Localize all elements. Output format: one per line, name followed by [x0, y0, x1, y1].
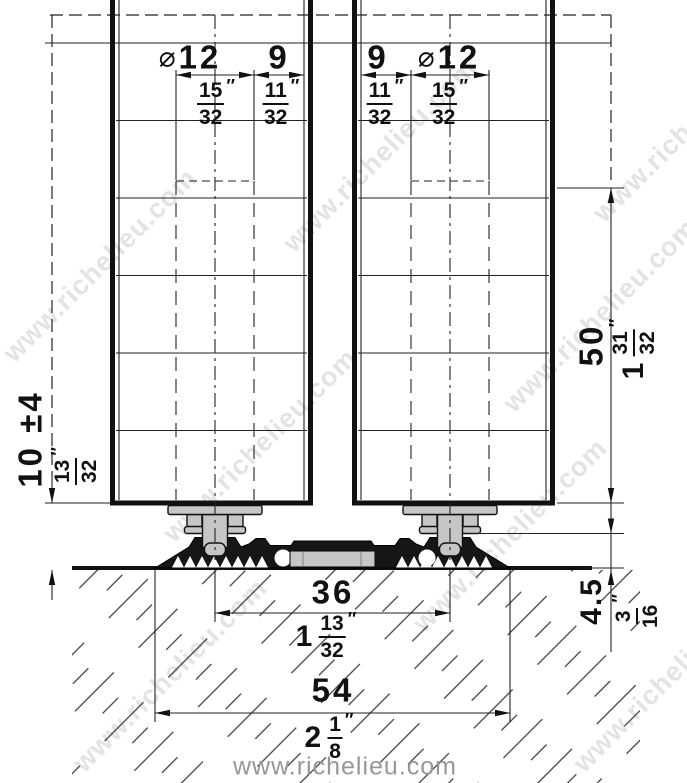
label-hole-depth-mm: 50 [575, 324, 608, 367]
pin-centerlines [215, 15, 450, 560]
reference-outline [50, 15, 611, 477]
label-hole-dia-right-inch: 1532 ″ [430, 80, 468, 128]
label-floor-gap-inch: 1332 ″ [52, 447, 100, 485]
technical-drawing-canvas: www.richelieu.com www.richelieu.com www.… [0, 0, 687, 783]
label-pin-spacing-mm: 36 [312, 576, 355, 609]
label-hole-diameter-right: ⌀ 12 [418, 41, 481, 74]
label-floor-gap-mm: 10 ±4 [14, 390, 47, 487]
label-edge-gap-right-inch: 1132 ″ [367, 80, 404, 128]
label-track-height-inch: 316 ″ [613, 594, 661, 628]
diameter-icon: ⌀ [159, 43, 176, 71]
track-screw-hole-left [275, 550, 292, 567]
track-screw-hole-right [419, 550, 436, 567]
label-pin-spacing-inch: 1 1332 ″ [296, 613, 357, 661]
label-track-width-mm: 54 [312, 674, 355, 707]
label-edge-gap-left: 9 [268, 41, 289, 74]
floor-hatch [72, 570, 640, 783]
label-hole-depth-inch: 1 3132 ″ [610, 319, 658, 380]
label-hole-diameter-left: ⌀ 12 [159, 41, 222, 74]
label-edge-gap-right: 9 [367, 41, 388, 74]
label-edge-gap-left-inch: 1132 ″ [263, 80, 300, 128]
footer-url: www.richelieu.com [233, 753, 457, 782]
section-drawing [0, 0, 687, 783]
diameter-icon: ⌀ [418, 43, 435, 71]
label-track-height-mm: 4.5 [577, 577, 607, 625]
label-hole-dia-left-inch: 1532 ″ [197, 80, 235, 128]
